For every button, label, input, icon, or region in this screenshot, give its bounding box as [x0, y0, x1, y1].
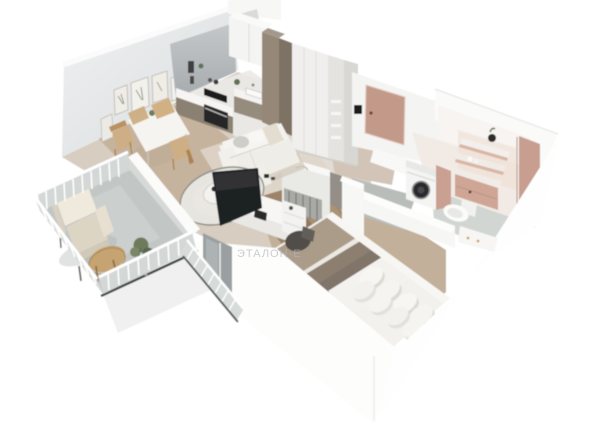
svg-text:ЭТАЛОН-Е: ЭТАЛОН-Е [237, 248, 302, 260]
